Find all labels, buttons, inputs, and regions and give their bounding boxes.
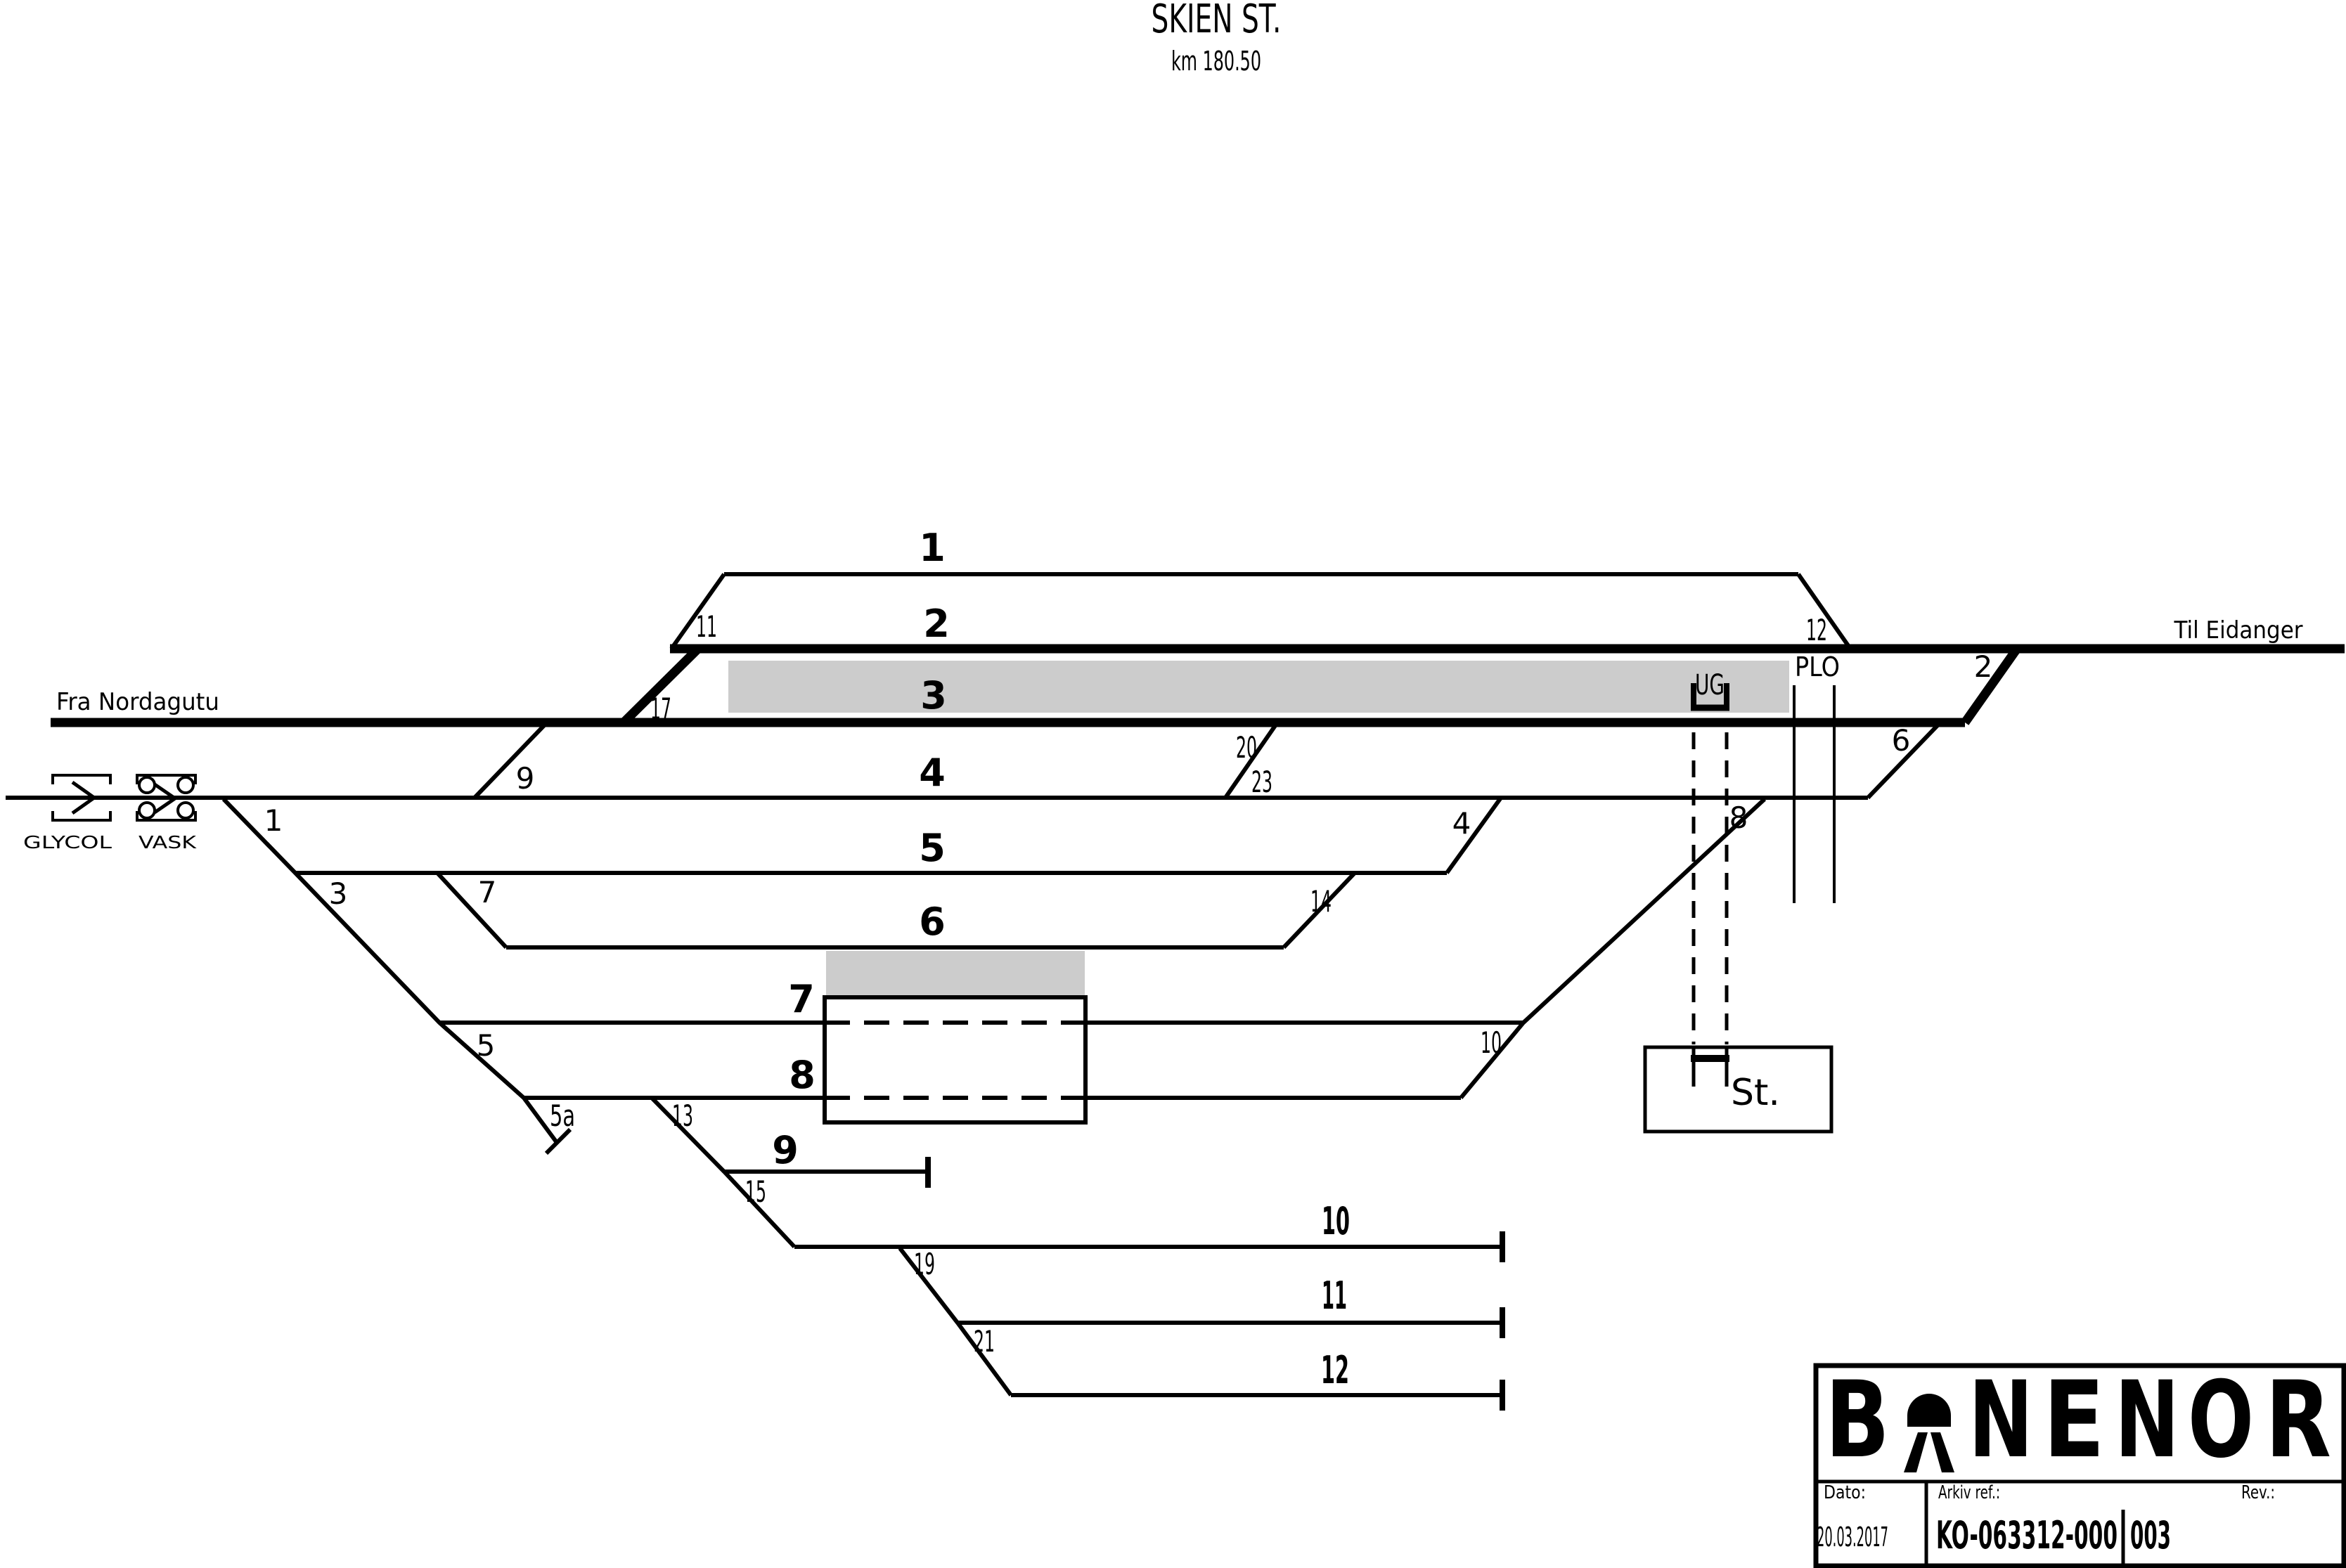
switch-label-12: 12 — [1806, 613, 1827, 647]
arkiv-ref-value: KO-063312-000 — [1936, 1513, 2118, 1557]
logo-letter: E — [2043, 1359, 2105, 1482]
underpass-stairs-sides — [1694, 1047, 1727, 1087]
logo-letter: B — [1825, 1359, 1890, 1482]
page-title: SKIEN ST. — [1152, 0, 1282, 42]
arkiv-ref-label: Arkiv ref.: — [1938, 1482, 2000, 1503]
glycol-symbol-top-bracket — [53, 775, 110, 784]
underpass-label: UG — [1695, 669, 1725, 701]
track-label-12: 12 — [1321, 1348, 1349, 1392]
direction-from-label: Fra Nordagutu — [56, 688, 219, 716]
vask-label: VASK — [138, 832, 197, 853]
switch-label-3: 3 — [329, 876, 348, 911]
platform-track3 — [728, 661, 1789, 713]
diagram-canvas: GLYCOL VASK UG PLO St. SKIEN ST. km 180.… — [0, 0, 2346, 1568]
vask-wheel-icon — [178, 803, 193, 818]
switch-label-5a: 5a — [550, 1099, 575, 1133]
switch-label-5: 5 — [477, 1028, 496, 1063]
track-label-1: 1 — [919, 526, 946, 570]
switch-label-1: 1 — [264, 803, 283, 838]
track-label-4: 4 — [919, 751, 946, 795]
station-track-diagram: GLYCOL VASK UG PLO St. SKIEN ST. km 180.… — [0, 0, 2346, 1568]
station-building-label: St. — [1731, 1072, 1780, 1114]
track-label-7: 7 — [788, 977, 815, 1021]
track-label-10: 10 — [1322, 1199, 1350, 1243]
switch-label-19: 19 — [914, 1247, 935, 1281]
switch-label-23: 23 — [1251, 765, 1272, 799]
switch-10-8-diagonal — [1461, 799, 1765, 1098]
switch-label-2: 2 — [1974, 649, 1993, 684]
switch-label-8: 8 — [1729, 801, 1748, 835]
switch-label-20: 20 — [1236, 730, 1257, 765]
vask-wheel-icon — [178, 777, 193, 793]
switch-label-11: 11 — [696, 609, 717, 644]
logo-letter: R — [2265, 1359, 2331, 1482]
vask-wheel-icon — [139, 803, 155, 818]
rev-value: 003 — [2130, 1513, 2171, 1557]
track-label-3: 3 — [920, 673, 947, 718]
track-label-11: 11 — [1322, 1274, 1347, 1318]
logo-letter: N — [1968, 1359, 2033, 1482]
direction-to-label: Til Eidanger — [2174, 616, 2303, 644]
dato-label: Dato: — [1824, 1482, 1866, 1503]
switch-9-diagonal — [475, 723, 547, 798]
track-label-9: 9 — [772, 1128, 799, 1172]
logo-letter: N — [2115, 1359, 2179, 1482]
level-crossing-label: PLO — [1795, 652, 1840, 682]
logo-letter: O — [2188, 1359, 2254, 1482]
switch-label-10: 10 — [1481, 1025, 1502, 1060]
switch-label-6: 6 — [1892, 723, 1911, 758]
bane-nor-emblem-icon — [1907, 1394, 1951, 1427]
switch-label-4: 4 — [1452, 806, 1471, 841]
glycol-label: GLYCOL — [23, 832, 112, 853]
switch-1-3-5-ladder-diagonal — [224, 799, 558, 1143]
vask-wheel-icon — [139, 777, 155, 793]
page-subtitle-km: km 180.50 — [1171, 46, 1261, 77]
switch-label-9: 9 — [516, 761, 535, 796]
switch-label-14: 14 — [1310, 884, 1332, 919]
bane-nor-logo: B N E N O R — [1825, 1359, 2331, 1482]
bane-nor-emblem-icon — [1931, 1432, 1954, 1472]
glycol-symbol-bottom-bracket — [53, 811, 110, 820]
bane-nor-emblem-icon — [1904, 1432, 1928, 1472]
switch-label-15: 15 — [745, 1174, 766, 1209]
track-label-6: 6 — [919, 900, 946, 944]
switch-label-7: 7 — [478, 875, 497, 909]
track-label-2: 2 — [923, 602, 950, 646]
rev-label: Rev.: — [2241, 1482, 2275, 1503]
track-label-5: 5 — [919, 826, 946, 870]
engine-shed-outline — [825, 997, 1085, 1122]
switch-label-21: 21 — [974, 1324, 995, 1359]
dato-value: 20.03.2017 — [1817, 1522, 1888, 1553]
track-label-8: 8 — [789, 1053, 816, 1097]
switch-label-13: 13 — [672, 1099, 693, 1133]
platform-track7 — [826, 951, 1085, 997]
switch-label-17: 17 — [650, 692, 671, 726]
